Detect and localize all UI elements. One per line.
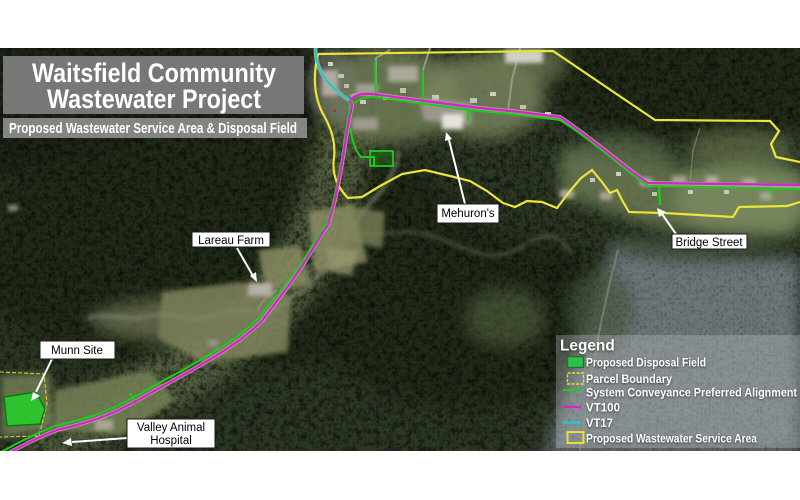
svg-text:Lareau Farm: Lareau Farm xyxy=(198,235,264,247)
svg-text:System Conveyance Preferred Al: System Conveyance Preferred Alignment xyxy=(586,386,797,400)
svg-text:Proposed Wastewater Service Ar: Proposed Wastewater Service Area xyxy=(586,432,757,446)
svg-text:VT100: VT100 xyxy=(586,401,620,415)
svg-text:Wastewater Project: Wastewater Project xyxy=(47,84,261,114)
svg-text:Hospital: Hospital xyxy=(150,435,192,447)
svg-text:Proposed Wastewater Service Ar: Proposed Wastewater Service Area & Dispo… xyxy=(9,121,297,137)
svg-text:Parcel Boundary: Parcel Boundary xyxy=(586,372,672,386)
svg-text:Valley Animal: Valley Animal xyxy=(137,422,205,434)
svg-text:Munn Site: Munn Site xyxy=(51,345,103,357)
svg-text:Legend: Legend xyxy=(560,338,615,355)
svg-text:Proposed Disposal Field: Proposed Disposal Field xyxy=(586,356,706,370)
svg-text:VT17: VT17 xyxy=(586,416,613,430)
svg-text:Bridge Street: Bridge Street xyxy=(675,237,743,249)
svg-text:Mehuron's: Mehuron's xyxy=(441,208,495,220)
